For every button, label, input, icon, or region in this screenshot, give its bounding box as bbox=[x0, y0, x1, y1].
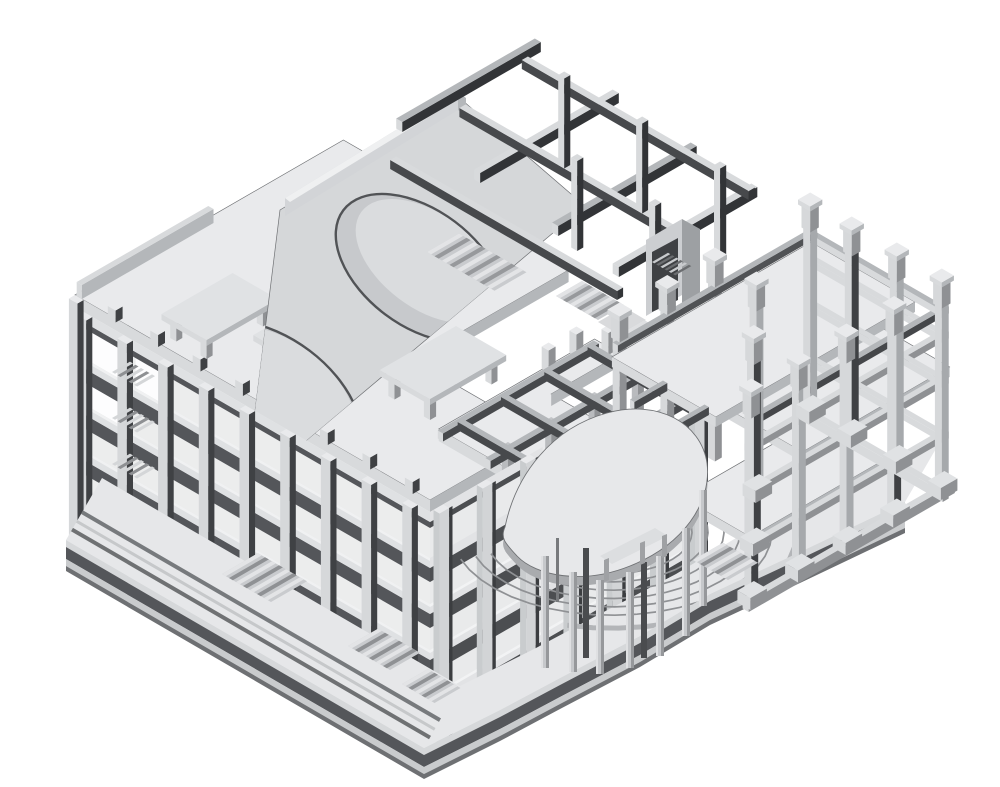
model-canvas bbox=[0, 0, 1000, 787]
model-viewport[interactable] bbox=[0, 0, 1000, 787]
